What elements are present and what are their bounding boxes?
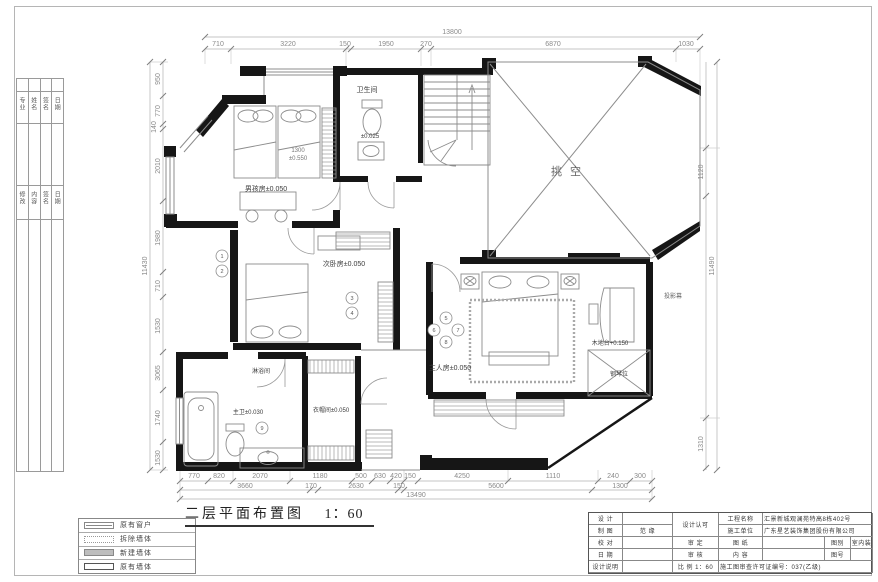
nightstand-right	[561, 274, 579, 289]
strip-label: 姓名	[30, 97, 36, 111]
desk-chair	[246, 210, 258, 222]
tb-date-value	[623, 549, 673, 561]
tb-draft-value: 范 缘	[623, 525, 673, 537]
dim-label: 140	[151, 121, 158, 133]
tb-check-label: 校 对	[589, 537, 623, 549]
drawing-sheet: 13800 710 3220 150 1950 270 6870 1030 77…	[0, 0, 878, 582]
tb-content-value	[763, 549, 825, 561]
tb-notes-value	[623, 561, 673, 573]
tb-scale-label: 比 例	[678, 562, 693, 571]
shower-label: 淋浴间	[252, 367, 270, 375]
dim-label: 1120	[698, 164, 705, 179]
strip-column: 姓名 内容	[29, 79, 41, 471]
strip-column: 签名 签名	[41, 79, 53, 471]
strip-column: 日期 日期	[52, 79, 63, 471]
tb-category-label: 图别	[825, 537, 851, 549]
dim-label: 2010	[155, 158, 162, 174]
strip-label: 专业	[18, 97, 24, 111]
strip-label: 日期	[53, 191, 59, 205]
dim-label: 5600	[488, 483, 504, 490]
dim-label: 13490	[406, 492, 426, 499]
dim-label: 1980	[155, 230, 162, 246]
callout-number: 1	[220, 254, 223, 260]
dim-label: 1530	[155, 318, 162, 334]
dim-label: 150	[393, 483, 405, 490]
legend-row: 原有窗户	[79, 519, 195, 533]
dim-label: 2630	[348, 483, 364, 490]
legend-row: 新建墙体	[79, 547, 195, 561]
callout-number: 5	[444, 316, 447, 322]
tb-review-label: 审 核	[673, 549, 719, 561]
dim-label: 11490	[709, 256, 716, 275]
callout-number: 7	[456, 328, 459, 334]
legend-swatch-original	[84, 563, 114, 570]
dim-label: 420	[390, 473, 402, 480]
tb-builder-value: 广东星艺装饰集团股份有限公司	[763, 525, 873, 537]
toilet	[226, 424, 244, 456]
boy-wardrobe	[322, 108, 336, 178]
closet-label: 衣帽间±0.050	[313, 406, 350, 414]
tb-sheet-value	[763, 537, 825, 549]
tb-project-value: 汇景新城观澜苑特高8栋402号	[763, 513, 873, 525]
tb-category-value: 室内装	[851, 537, 873, 549]
strip-label: 日期	[53, 97, 59, 111]
tb-date-label: 日 期	[589, 549, 623, 561]
dim-label: 240	[607, 473, 619, 480]
boy-bed-2	[278, 106, 320, 178]
room-label-second: 次卧房±0.050	[323, 259, 365, 268]
callout-number: 4	[350, 311, 353, 317]
title-block: 设 计 设计认可 工程名称 汇景新城观澜苑特高8栋402号 制 图 范 缘 施工…	[588, 512, 872, 574]
dim-label: 710	[155, 280, 162, 292]
corridor-cabinet	[366, 430, 392, 458]
legend-swatch-window	[84, 522, 114, 529]
nightstand-left	[461, 274, 479, 289]
frame-side-strip: 专业 修改 姓名 内容 签名 签名 日期 日期	[16, 78, 64, 472]
master-bed	[482, 272, 558, 356]
legend: 原有窗户 拆除墙体 新建墙体 原有墙体	[78, 518, 196, 574]
dim-label: 710	[212, 41, 224, 48]
hall-cabinet	[336, 232, 390, 249]
legend-label: 新建墙体	[120, 548, 152, 558]
piano-label: 钢琴位	[610, 370, 628, 378]
projector-label: 投影幕	[664, 292, 682, 300]
plan-scale: 1：60	[325, 507, 364, 522]
dim-label: 950	[155, 73, 162, 85]
legend-swatch-demolish	[84, 536, 114, 543]
callout-number: 8	[444, 340, 447, 346]
strip-label: 内容	[30, 191, 36, 205]
room-label-bath: 卫生间	[357, 85, 378, 94]
tb-content-label: 内 容	[719, 549, 763, 561]
dim-label: 630	[374, 473, 386, 480]
room-label-void: 挑空	[551, 164, 589, 178]
dim-label: 1030	[678, 41, 694, 48]
dim-label: 820	[213, 473, 225, 480]
dim-label: 500	[355, 473, 367, 480]
dim-label: 770	[188, 473, 200, 480]
tb-notes-label: 设计说明	[589, 561, 623, 573]
callout-number: 2	[220, 269, 223, 275]
dim-label: 13800	[442, 29, 462, 36]
dim-label: 1310	[698, 436, 705, 452]
strip-label: 签名	[42, 97, 48, 111]
legend-label: 原有墙体	[120, 562, 152, 572]
room-label-boy: 男孩房±0.050	[245, 184, 287, 193]
dim-label: 770	[155, 105, 162, 117]
walls	[164, 56, 701, 471]
dim-label: 1530	[155, 450, 162, 466]
tb-project-label: 工程名称	[719, 513, 763, 525]
master-bath-label: 主卫±0.030	[233, 408, 264, 416]
strip-label: 修改	[18, 191, 24, 205]
dim-label: 3220	[280, 41, 296, 48]
tb-number-value	[851, 549, 873, 561]
tb-design-label: 设 计	[589, 513, 623, 525]
bed-bench	[489, 352, 549, 365]
dim-label: 1110	[546, 473, 561, 480]
legend-swatch-new	[84, 549, 114, 556]
closet-wardrobe-bottom	[308, 446, 354, 460]
callout-number: 6	[432, 328, 435, 334]
strip-column: 专业 修改	[17, 79, 29, 471]
callout-number: 9	[260, 426, 263, 432]
bed-level-label: ±0.550	[289, 156, 308, 162]
platform-label: 木地台+0.150	[592, 339, 629, 347]
plan-title: 二层平面布置图 1：60	[185, 503, 374, 527]
dim-label: 2070	[252, 473, 268, 480]
dim-label: 3065	[155, 365, 162, 381]
second-bed	[246, 264, 308, 342]
dim-label: 1740	[155, 410, 162, 426]
second-cabinet	[378, 282, 393, 342]
bed-width-label: 1300	[291, 148, 305, 154]
tb-approval-label: 设计认可	[673, 513, 719, 537]
legend-row: 原有墙体	[79, 560, 195, 573]
boy-bed-1	[234, 106, 276, 178]
floor-plan-svg: 13800 710 3220 150 1950 270 6870 1030 77…	[0, 0, 878, 582]
tb-sheet-label: 图 纸	[719, 537, 763, 549]
tb-scale-cell: 比 例 1：60	[673, 561, 719, 573]
level-label: ±0.025	[361, 134, 380, 140]
tb-builder-label: 施工单位	[719, 525, 763, 537]
closet-wardrobe-top	[308, 360, 354, 373]
dim-label: 11430	[142, 256, 149, 275]
desk-chair	[275, 210, 287, 222]
dim-label: 1950	[378, 41, 394, 48]
stairs	[424, 75, 490, 166]
dim-label: 1300	[612, 483, 628, 490]
small-bath-fixtures	[358, 100, 384, 160]
dim-label: 4250	[454, 473, 470, 480]
bathtub	[184, 392, 218, 466]
tb-scale-value: 1：60	[695, 562, 713, 571]
dim-label: 1180	[312, 473, 327, 480]
callout-number: 3	[350, 296, 353, 302]
legend-label: 拆除墙体	[120, 534, 152, 544]
room-label-master: 主人房±0.050	[429, 363, 471, 372]
legend-row: 拆除墙体	[79, 533, 195, 547]
piano	[589, 288, 634, 342]
dim-label: 270	[420, 41, 432, 48]
tb-design-value	[623, 513, 673, 525]
tb-check-value	[623, 537, 673, 549]
dim-label: 300	[634, 473, 646, 480]
plan-title-text: 二层平面布置图	[185, 507, 304, 522]
legend-label: 原有窗户	[120, 520, 152, 530]
boy-desk	[240, 192, 296, 210]
dim-label: 150	[404, 473, 416, 480]
dim-label: 6870	[545, 41, 561, 48]
dim-label: 3660	[237, 483, 253, 490]
tb-examine-label: 审 定	[673, 537, 719, 549]
dim-label: 150	[339, 41, 351, 48]
dim-label: 170	[305, 483, 317, 490]
tb-permit: 施工图审查许可证编号：037(乙级)	[719, 561, 873, 573]
master-wardrobe	[434, 400, 564, 416]
tb-number-label: 图号	[825, 549, 851, 561]
strip-label: 签名	[42, 191, 48, 205]
tb-draft-label: 制 图	[589, 525, 623, 537]
